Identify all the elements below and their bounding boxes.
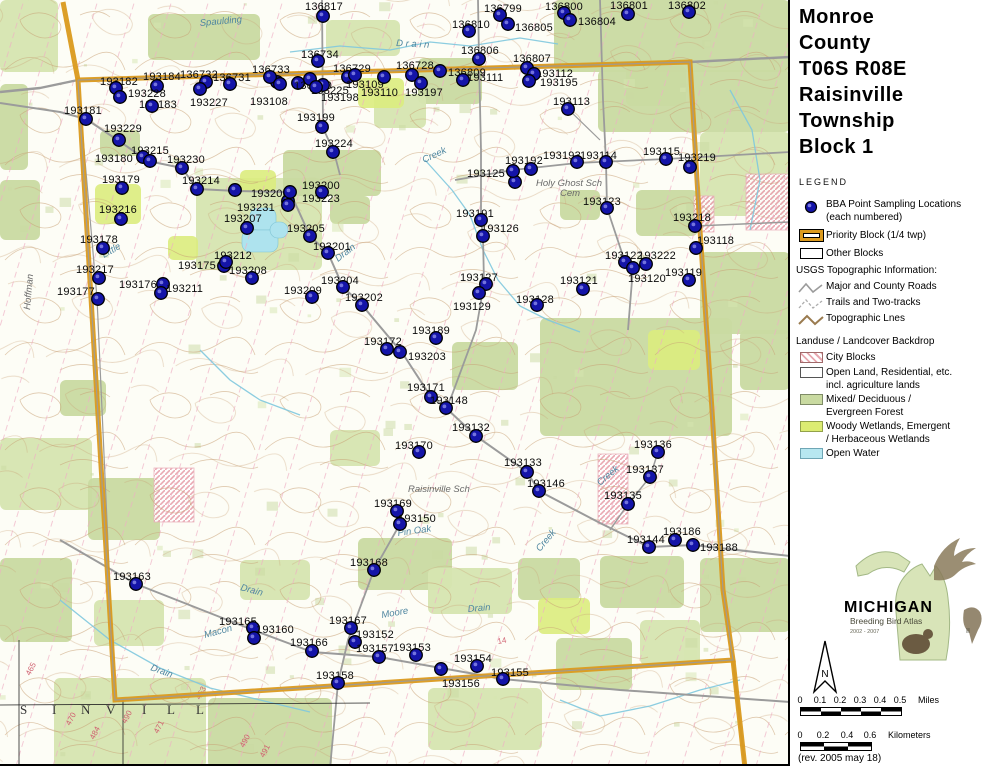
bba-point-dot [531,299,544,312]
township-letter: I [52,702,56,717]
bba-point-dot [194,83,207,96]
legend-label: Open Land, Residential, etc. [826,366,952,379]
bba-point-label: 193108 [250,96,288,108]
bba-point-label: 136804 [578,16,616,28]
bba-point-dot [316,186,329,199]
legend-item-trails: Trails and Two-tracks [796,296,996,311]
scale-tick: 0 [797,695,802,705]
bba-point-highlight [622,259,626,263]
lake [270,222,288,238]
bba-point-highlight [158,290,162,294]
legend-label: Topographic Lnes [826,312,905,325]
bba-point-highlight [561,10,565,14]
usgs-section-header: USGS Topographic Information: [796,265,937,276]
bba-point-highlight [687,164,691,168]
bba-point-highlight [534,302,538,306]
roads-line-icon [796,280,826,295]
km-scale-bar [800,742,872,751]
bba-point-dot [312,55,325,68]
north-arrow: N [805,638,845,700]
bba-point-dot [381,343,394,356]
legend-label: City Blocks [826,351,875,364]
bba-point-dot [652,446,665,459]
bba-point-highlight [437,68,441,72]
bba-point-dot [116,182,129,195]
legend-item-priority-block: Priority Block (1/4 twp) [796,229,996,242]
bba-point-dot [246,272,259,285]
bba-point-highlight [397,349,401,353]
title-line: T06S R08E [799,56,907,82]
bba-point-dot [373,651,386,664]
legend-item-other-blocks: Other Blocks [796,247,996,260]
bba-point-label: 193152 [356,629,394,641]
bba-point-dot [683,274,696,287]
topo-line-icon [796,312,826,327]
bba-point-highlight [359,302,363,306]
bba-point-highlight [119,185,123,189]
legend-item-bba: BBA Point Sampling Locations (each numbe… [796,198,996,224]
map-canvas: SINVILL46547048449047149049146314Spauldi… [0,0,790,766]
map-point-193195: 193195 [523,75,578,89]
legend-item-woody-wetlands: Woody Wetlands, Emergent / Herbaceous We… [796,420,996,446]
bba-point-highlight [443,405,447,409]
north-label: N [821,669,828,680]
legend-label: incl. agriculture lands [826,379,952,392]
bba-point-dot [356,299,369,312]
bba-point-highlight [604,205,608,209]
bba-point-highlight [117,94,121,98]
bba-point-highlight [418,80,422,84]
bba-point-dot [155,287,168,300]
bba-point-highlight [320,13,324,17]
legend-header: LEGEND [799,177,848,187]
bba-point-highlight [307,76,311,80]
bba-point-dot [378,71,391,84]
bba-point-dot [322,247,335,260]
bba-point-highlight [672,537,676,541]
bba-point-highlight [309,648,313,652]
miles-scale-bar [800,707,902,716]
bba-point-highlight [438,666,442,670]
bba-point-dot [643,541,656,554]
logo-title: MICHIGAN [844,599,933,616]
bba-point-highlight [315,58,319,62]
other-blocks-icon [796,247,826,259]
scale-tick: 0 [797,730,802,740]
bba-point-dot [457,74,470,87]
bba-point-dot [690,242,703,255]
bba-point-dot [473,287,486,300]
bba-point-dot [80,113,93,126]
bba-point-highlight [319,189,323,193]
township-letter: L [196,702,204,717]
bba-point-dot [627,262,640,275]
bba-point-highlight [371,567,375,571]
bba-point-dot [477,230,490,243]
bba-point-highlight [693,245,697,249]
legend-label: Priority Block (1/4 twp) [826,229,926,242]
bba-point-highlight [133,581,137,585]
bba-point-dot [463,25,476,38]
bba-point-dot [274,78,287,91]
bba-point-dot [316,121,329,134]
bba-point-highlight [625,501,629,505]
bba-point-dot [470,430,483,443]
bba-point-dot [440,402,453,415]
bba-point-highlight [397,521,401,525]
bba-point-highlight [416,449,420,453]
bba-point-highlight [655,449,659,453]
bba-point-dot [97,242,110,255]
bba-point-dot [93,272,106,285]
bba-point-highlight [473,433,477,437]
scale-unit: Kilometers [888,730,931,740]
bba-point-highlight [500,676,504,680]
bba-point-highlight [179,165,183,169]
bba-point-dot [601,202,614,215]
bba-point-label: 193111 [467,72,503,84]
bba-point-highlight [460,77,464,81]
scale-tick: 0.6 [864,730,877,740]
legend-panel: Monroe County T06S R08E Raisinville Town… [790,0,1000,768]
bba-point-highlight [194,186,198,190]
bba-point-dot [564,14,577,27]
bba-point-highlight [113,85,117,89]
bba-point-label: 193195 [540,77,578,89]
bba-point-highlight [603,159,607,163]
bba-point-dot [92,293,105,306]
bba-point-dot [224,78,237,91]
bba-point-highlight [251,635,255,639]
bba-point-highlight [643,261,647,265]
scale-tick: 0.2 [834,695,847,705]
legend-label: Trails and Two-tracks [826,296,920,309]
bba-point-highlight [348,625,352,629]
feature-label: D r a i n [396,38,430,51]
bba-point-highlight [580,286,584,290]
scale-tick: 0.5 [894,695,907,705]
bba-point-highlight [480,233,484,237]
map-bottom-border [0,764,790,766]
bba-point-highlight [625,11,629,15]
bba-point-label: 193231 [237,202,275,214]
bba-point-dot [660,153,673,166]
perched-bird-icon [963,607,981,644]
bba-point-label: 193118 [697,235,734,247]
bba-point-dot [229,184,242,197]
scale-tick: 0.4 [841,730,854,740]
bba-point-highlight [227,81,231,85]
bba-point-highlight [505,21,509,25]
legend-item-roads: Major and County Roads [796,280,996,295]
township-letter: N [81,702,91,717]
bba-point-highlight [95,296,99,300]
bba-point-highlight [340,284,344,288]
bba-point-highlight [285,202,289,206]
legend-label: Open Water [826,447,880,460]
scale-unit: Miles [918,695,939,705]
bba-point-highlight [690,542,694,546]
bba-point-highlight [574,159,578,163]
legend-label: Mixed/ Deciduous / [826,393,911,406]
bba-point-label: 193175 [178,260,216,272]
bba-point-label: 193206 [251,188,289,200]
map-point [229,184,242,197]
bba-point-highlight [528,166,532,170]
bba-point-dot [473,53,486,66]
bba-point-highlight [250,625,254,629]
title-line: Monroe [799,4,907,30]
bba-point-dot [640,258,653,271]
bba-point-highlight [647,474,651,478]
bba-point-dot [146,100,159,113]
bba-point-dot [471,660,484,673]
landuse-section-header: Landuse / Landcover Backdrop [796,336,934,347]
township-letter: I [142,702,146,717]
bba-point-dot [284,186,297,199]
bba-point-dot [622,498,635,511]
scale-tick: 0.4 [874,695,887,705]
bba-point-highlight [630,265,634,269]
bba-point-label: 193129 [453,301,491,313]
logo-subtitle: Breeding Bird Atlas [850,616,922,626]
legend-item-topo-lines: Topographic Lnes [796,312,996,327]
bba-point-dot [282,199,295,212]
bba-point-highlight [223,259,227,263]
legend-item-open-land: Open Land, Residential, etc. incl. agric… [796,366,996,392]
bba-point-dot [507,165,520,178]
open-land-swatch [796,366,826,378]
feature-label: Raisinville Sch [408,484,470,495]
map-title: Monroe County T06S R08E Raisinville Town… [799,4,907,160]
bba-point-dot [669,534,682,547]
bba-point-highlight [197,86,201,90]
bba-point-dot [523,75,536,88]
bba-point-highlight [96,275,100,279]
bba-point-label: 193219 [678,152,716,164]
michigan-up-shape [856,552,910,576]
bba-point-dot [622,8,635,21]
page: SINVILL46547048449047149049146314Spauldi… [0,0,1000,768]
legend-label: Major and County Roads [826,280,937,293]
legend-label: / Herbaceous Wetlands [826,433,950,446]
bba-point-label: 193156 [442,678,480,690]
bba-point-highlight [267,74,271,78]
legend-item-city-blocks: City Blocks [796,351,996,364]
bba-point-dot [689,220,702,233]
bba-point-highlight [478,217,482,221]
legend-label: Other Blocks [826,247,883,260]
bba-point-dot [248,632,261,645]
bba-point-label: 193211 [166,283,203,295]
bba-point-highlight [512,179,516,183]
open-water-swatch [796,447,826,459]
bba-point-highlight [376,654,380,658]
bba-point-dot [410,649,423,662]
bba-point-highlight [567,17,571,21]
bba-point-dot [130,578,143,591]
bba-point-dot [430,332,443,345]
bba-point-highlight [526,78,530,82]
bba-point-dot [144,155,157,168]
legend-label: BBA Point Sampling Locations [826,198,961,211]
bba-point-highlight [309,294,313,298]
bba-point-highlight [203,79,207,83]
bba-point-label: 193171 [407,382,445,394]
logo-years: 2002 - 2007 [850,629,879,635]
bba-point-label: 193229 [104,123,142,135]
bba-point-highlight [345,74,349,78]
bba-point-highlight [510,168,514,172]
legend-label: Woody Wetlands, Emergent [826,420,950,433]
bba-point-dot [497,673,510,686]
km-scale-labels: 0 0.2 0.4 0.6 Kilometers [800,730,1000,740]
map-point-193206: 193206 [251,186,296,200]
bba-point-highlight [118,216,122,220]
bba-point-label: 193110 [361,87,398,99]
bba-point-highlight [330,149,334,153]
bba-point-dot [413,446,426,459]
bba-point-dot [113,134,126,147]
bba-point-dot [415,77,428,90]
title-line: County [799,30,907,56]
bobwhite-head-icon [923,629,933,639]
bba-point-label: 193180 [95,153,133,165]
bba-point-highlight [307,233,311,237]
bba-point-dot [191,183,204,196]
miles-scale-labels: 0 0.1 0.2 0.3 0.4 0.5 Miles [800,695,1000,705]
legend-label: Evergreen Forest [826,406,911,419]
bba-point-label: 136805 [515,22,553,34]
bba-point-dot [317,10,330,23]
bba-point-dot [434,65,447,78]
bba-point-dot [521,466,534,479]
bba-point-label: 193176 [119,279,157,291]
bba-point-dot [368,564,381,577]
priority-block-icon [796,229,826,241]
legend-item-mixed-forest: Mixed/ Deciduous / Evergreen Forest [796,393,996,419]
bba-point-dot [533,485,546,498]
bba-point-highlight [524,469,528,473]
title-line: Township [799,108,907,134]
bba-point-dot [562,103,575,116]
bba-point-highlight [524,65,528,69]
scale-tick: 0.3 [854,695,867,705]
bba-point-highlight [319,124,323,128]
bba-point-highlight [147,158,151,162]
bba-point-highlight [149,103,153,107]
bba-point-highlight [646,544,650,548]
bba-point-label: 193227 [190,97,228,109]
bba-point-dot [241,222,254,235]
bba-point-highlight [232,187,236,191]
woody-wetlands-swatch [796,420,826,432]
bba-point-dot [687,539,700,552]
bba-point-highlight [277,81,281,85]
township-letter: S [20,702,27,717]
hawk-icon [934,538,976,580]
bba-point-highlight [531,71,535,75]
bba-point-highlight [249,275,253,279]
bba-point-highlight [433,335,437,339]
township-letter: V [106,702,116,717]
mbba-logo: MICHIGAN Breeding Bird Atlas 2002 - 2007… [838,532,998,667]
legend-label: (each numbered) [826,211,961,224]
bba-point-highlight [154,83,158,87]
bba-point-highlight [100,245,104,249]
bba-point-dot [394,518,407,531]
revision-note: (rev. 2005 may 18) [798,753,881,764]
bba-point-highlight [160,281,164,285]
bba-point-icon [796,198,826,215]
bba-point-dot [683,6,696,19]
bba-point-highlight [474,663,478,667]
bba-point-dot [114,91,127,104]
bba-point-dot [684,161,697,174]
bba-point-highlight [313,84,317,88]
bba-point-highlight [116,137,120,141]
bba-point-label: 193125 [467,168,505,180]
bba-point-label: 193160 [256,624,294,636]
feature-label: Drain [467,602,491,615]
bba-point-label: 193199 [297,112,335,124]
bba-point-dot [525,163,538,176]
bba-point-dot [600,156,613,169]
title-line: Raisinville [799,82,907,108]
bba-point-label: 193188 [700,542,738,554]
bba-point-highlight [394,508,398,512]
bba-point-highlight [384,346,388,350]
bba-point-highlight [692,223,696,227]
bba-point-highlight [483,281,487,285]
bba-point-highlight [140,154,144,158]
bba-point-dot [502,18,515,31]
bba-point-dot [176,162,189,175]
bba-point-highlight [536,488,540,492]
bba-point-highlight [352,72,356,76]
bba-point-highlight [476,290,480,294]
bba-point-highlight [466,28,470,32]
bba-point-highlight [476,56,480,60]
bba-point-label: 193203 [408,351,446,363]
bba-point-highlight [287,189,291,193]
bba-point-dot [394,346,407,359]
bba-point-highlight [325,250,329,254]
map-point-193183: 193183 [139,99,177,112]
bba-point-highlight [497,12,501,16]
logo-numeral: II [966,628,970,635]
bba-point-dot [306,291,319,304]
bba-point-highlight [565,106,569,110]
feature-label: Cem [560,188,580,199]
bba-point-dot [115,213,128,226]
bba-point-label: 193198 [321,92,359,104]
scale-tick: 0.2 [817,730,830,740]
bba-point-highlight [335,680,339,684]
bba-point-dot [644,471,657,484]
township-letter: L [167,702,175,717]
bba-point-highlight [663,156,667,160]
scale-tick: 0.1 [814,695,827,705]
bba-point-highlight [686,277,690,281]
bba-point-highlight [244,225,248,229]
bba-point-highlight [409,72,413,76]
mixed-forest-swatch [796,393,826,405]
legend-item-open-water: Open Water [796,447,996,460]
map-area: SINVILL46547048449047149049146314Spauldi… [0,0,790,766]
bba-point-dot [435,663,448,676]
bba-point-highlight [381,74,385,78]
